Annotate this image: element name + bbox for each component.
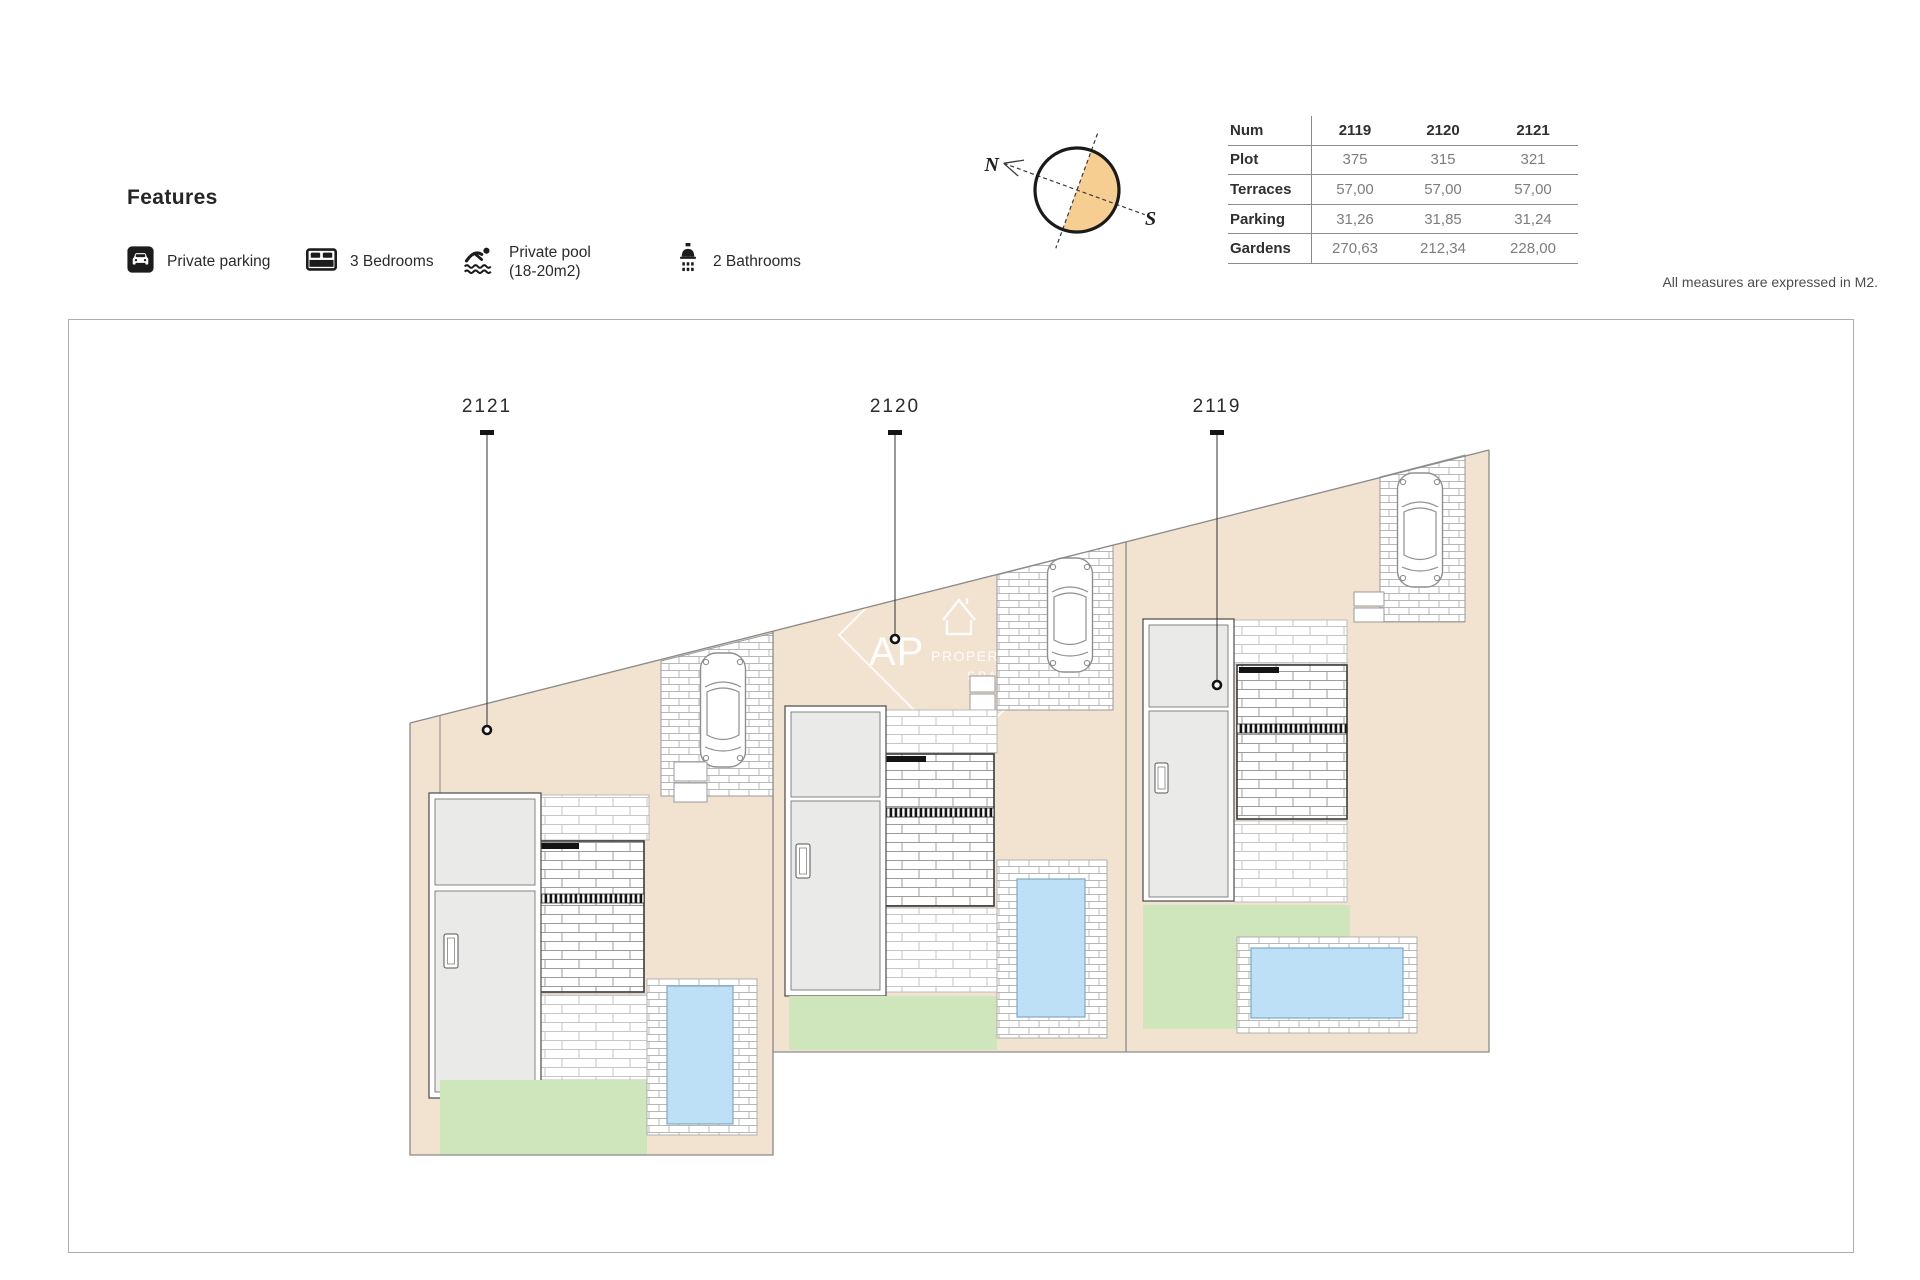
- storage-box: [1354, 608, 1384, 622]
- cell: 31,85: [1398, 205, 1488, 234]
- terrace: [1234, 821, 1347, 902]
- cell: 57,00: [1398, 175, 1488, 204]
- spec-table: Num 2119 2120 2121 Plot 375 315 321 Terr…: [1228, 116, 1578, 264]
- cell: 212,34: [1398, 234, 1488, 263]
- feature-label: 2 Bathrooms: [713, 252, 801, 271]
- storage-box: [674, 783, 707, 802]
- table-row-terraces: Terraces 57,00 57,00 57,00: [1228, 175, 1578, 205]
- pergola: [537, 894, 644, 903]
- feature-label: 3 Bedrooms: [350, 252, 434, 271]
- storage-box: [1354, 592, 1384, 606]
- plot-leader-2121: 2121: [462, 396, 512, 734]
- feature-label: Private parking: [167, 252, 270, 271]
- row-label: Gardens: [1228, 234, 1312, 263]
- compass-needle: [982, 107, 1165, 273]
- terrace: [886, 710, 997, 753]
- pool: [1251, 948, 1403, 1018]
- feature-item-bedrooms: 3 Bedrooms: [306, 240, 434, 284]
- plot-label: 2119: [1193, 396, 1242, 417]
- site-plan: AP PROPERTIES SPAIN: [68, 319, 1854, 1253]
- terrace: [1234, 620, 1347, 664]
- leader-dot: [483, 726, 491, 734]
- storage-box: [970, 676, 995, 692]
- building: [429, 793, 541, 1098]
- storage-box: [970, 694, 995, 710]
- cell: 375: [1312, 146, 1398, 175]
- compass: N S: [955, 95, 1215, 300]
- row-label: Terraces: [1228, 175, 1312, 204]
- car-icon: [701, 653, 746, 767]
- building: [785, 706, 886, 996]
- leader-dot: [1213, 681, 1221, 689]
- terrace: [886, 908, 997, 992]
- table-col-2121: 2121: [1488, 116, 1578, 145]
- door: [796, 844, 810, 878]
- features-title: Features: [127, 186, 218, 210]
- page: { "features": { "title": "Features", "it…: [0, 0, 1920, 1280]
- cell: 270,63: [1312, 234, 1398, 263]
- row-label: Parking: [1228, 205, 1312, 234]
- plot-label: 2121: [462, 396, 512, 417]
- feature-item-pool: Private pool(18-20m2): [463, 240, 591, 284]
- cell: 31,26: [1312, 205, 1398, 234]
- feature-item-parking: Private parking: [127, 240, 270, 284]
- table-row-plot: Plot 375 315 321: [1228, 146, 1578, 176]
- pool: [1017, 879, 1085, 1017]
- cell: 31,24: [1488, 205, 1578, 234]
- parking-icon: [127, 246, 154, 278]
- leader-dot: [891, 635, 899, 643]
- covered-terrace: [537, 841, 644, 992]
- building: [1143, 619, 1234, 901]
- covered-terrace: [1237, 665, 1347, 819]
- feature-label: Private pool(18-20m2): [509, 243, 591, 282]
- car-icon: [1398, 473, 1443, 587]
- garden: [440, 1080, 647, 1155]
- shower-icon: [676, 243, 700, 281]
- compass-north-label: N: [984, 154, 1001, 176]
- pool-icon: [463, 245, 496, 280]
- covered-terrace: [884, 754, 994, 906]
- measures-note: All measures are expressed in M2.: [1662, 274, 1878, 290]
- table-header-label: Num: [1228, 116, 1312, 145]
- cell: 57,00: [1312, 175, 1398, 204]
- table-row-gardens: Gardens 270,63 212,34 228,00: [1228, 234, 1578, 264]
- door: [444, 934, 458, 968]
- cell: 57,00: [1488, 175, 1578, 204]
- table-col-2119: 2119: [1312, 116, 1398, 145]
- table-col-2120: 2120: [1398, 116, 1488, 145]
- pergola: [884, 808, 994, 817]
- cell: 228,00: [1488, 234, 1578, 263]
- car-icon: [1048, 558, 1093, 672]
- feature-item-bathrooms: 2 Bathrooms: [676, 240, 801, 284]
- garden: [789, 996, 997, 1050]
- terrace: [535, 795, 649, 840]
- compass-south-label: S: [1145, 208, 1156, 230]
- terrace: [535, 994, 649, 1080]
- cell: 321: [1488, 146, 1578, 175]
- bed-icon: [306, 248, 337, 276]
- storage-box: [674, 762, 707, 781]
- cell: 315: [1398, 146, 1488, 175]
- table-header-row: Num 2119 2120 2121: [1228, 116, 1578, 146]
- plot-label: 2120: [870, 396, 920, 417]
- table-row-parking: Parking 31,26 31,85 31,24: [1228, 205, 1578, 235]
- row-label: Plot: [1228, 146, 1312, 175]
- pool: [667, 986, 733, 1124]
- pergola: [1237, 724, 1347, 733]
